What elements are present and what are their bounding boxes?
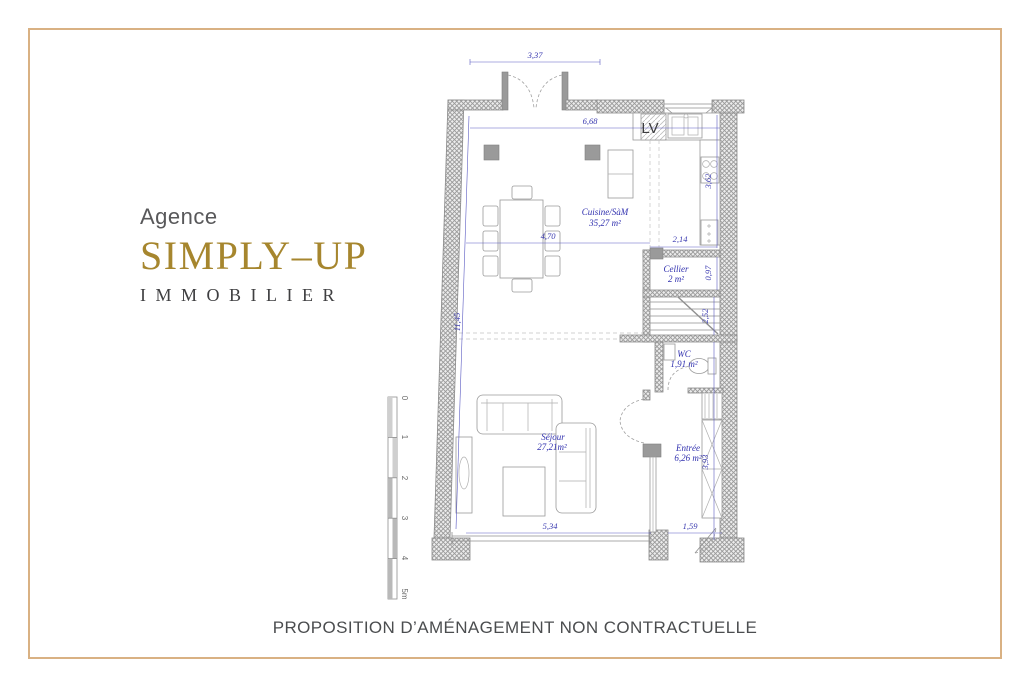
dim-kitchen-right: 3,62 [703, 173, 713, 190]
room-entree-name: Entrée [675, 443, 700, 453]
dishwasher-label: LV [641, 120, 658, 137]
scale-0: 0 [400, 396, 409, 401]
dim-cellier-depth: 0,97 [703, 265, 713, 281]
dim-kitchen-width: 6,68 [583, 116, 599, 126]
dim-kitchen-return: 2,14 [673, 234, 689, 244]
room-wc-name: WC [677, 349, 691, 359]
sejour-furniture [452, 333, 643, 516]
dim-dining-span: 4,70 [541, 231, 557, 241]
room-cuisine-area: 35,27 m² [588, 218, 621, 228]
dim-left-height: 11,45 [452, 313, 462, 332]
room-entree-area: 6,26 m² [674, 453, 701, 463]
dim-entry-door: 1,59 [683, 521, 699, 531]
dining-set [483, 145, 600, 292]
room-wc-area: 1,91 m² [670, 359, 697, 369]
room-sejour-area: 27,21m² [537, 442, 567, 452]
room-sejour-name: Séjour [541, 432, 565, 442]
dim-sejour-width: 5,34 [543, 521, 559, 531]
scale-2: 2 [400, 476, 409, 481]
scale-3: 3 [400, 516, 409, 521]
dim-stairs: 2,52 [700, 308, 710, 324]
scale-4: 4 [400, 556, 409, 561]
room-cellier-area: 2 m² [668, 274, 684, 284]
scale-1: 1 [400, 435, 409, 440]
dim-top-opening: 3,37 [527, 50, 544, 60]
page: Agence SIMPLY–UP IMMOBILIER [0, 0, 1030, 687]
wc-entree-fixtures [664, 344, 722, 518]
scale-bar: 0 1 2 3 4 5m [388, 396, 409, 600]
room-cellier-name: Cellier [664, 264, 689, 274]
room-cuisine-name: Cuisine/SàM [582, 207, 629, 217]
scale-5m: 5m [400, 588, 409, 599]
floorplan-drawing: 3,37 6,68 4,70 2,14 3,62 0,97 2,52 11,45… [0, 0, 1030, 687]
disclaimer-caption: PROPOSITION D’AMÉNAGEMENT NON CONTRACTUE… [0, 618, 1030, 638]
